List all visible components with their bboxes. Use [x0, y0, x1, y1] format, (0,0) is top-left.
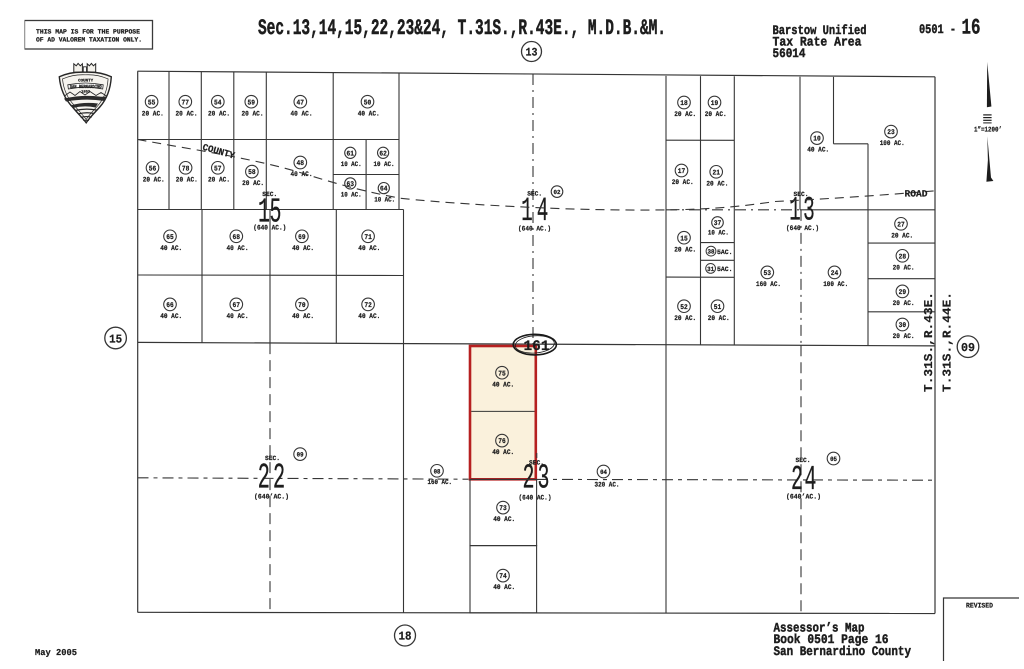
svg-text:1”=1200’: 1”=1200’	[974, 126, 1002, 135]
svg-text:48: 48	[297, 160, 304, 168]
svg-text:20 AC.: 20 AC.	[176, 110, 198, 118]
svg-text:09: 09	[961, 341, 975, 355]
svg-text:59: 59	[248, 99, 255, 107]
svg-text:62: 62	[379, 150, 386, 158]
svg-text:77: 77	[182, 99, 189, 107]
svg-text:58: 58	[248, 169, 255, 177]
svg-text:40 AC.: 40 AC.	[492, 449, 514, 457]
svg-text:160 AC.: 160 AC.	[428, 479, 453, 487]
svg-text:69: 69	[298, 234, 305, 242]
svg-text:75: 75	[498, 370, 505, 378]
svg-text:66: 66	[166, 302, 173, 310]
svg-text:17: 17	[678, 168, 685, 176]
svg-text:51: 51	[714, 304, 722, 312]
svg-text:29: 29	[899, 289, 906, 297]
svg-text:52: 52	[680, 304, 687, 312]
svg-text:161: 161	[524, 339, 550, 355]
svg-text:40 AC.: 40 AC.	[227, 245, 249, 253]
svg-text:61: 61	[347, 150, 355, 158]
svg-text:71: 71	[364, 234, 372, 242]
svg-text:20 AC.: 20 AC.	[176, 176, 198, 184]
svg-text:20 AC.: 20 AC.	[706, 180, 728, 188]
svg-text:20 AC.: 20 AC.	[672, 179, 694, 187]
svg-text:54: 54	[214, 99, 222, 107]
svg-text:27: 27	[897, 221, 904, 229]
svg-text:5AC.: 5AC.	[717, 249, 733, 256]
svg-text:13: 13	[526, 47, 538, 60]
svg-text:100 AC.: 100 AC.	[823, 281, 848, 289]
svg-text:56014: 56014	[773, 46, 806, 61]
svg-text:10: 10	[813, 136, 820, 144]
svg-text:T.31S.,R.44E.: T.31S.,R.44E.	[941, 292, 955, 392]
svg-text:28: 28	[899, 253, 906, 261]
svg-text:21: 21	[712, 169, 720, 177]
svg-text:20 AC.: 20 AC.	[674, 246, 696, 254]
svg-text:40 AC.: 40 AC.	[291, 171, 313, 179]
svg-text:2: 2	[523, 459, 535, 499]
svg-text:40 AC.: 40 AC.	[807, 147, 829, 155]
svg-text:31: 31	[707, 266, 714, 273]
svg-text:47: 47	[297, 99, 304, 107]
svg-text:73: 73	[499, 505, 506, 513]
svg-text:REVISED: REVISED	[966, 603, 993, 611]
svg-text:40 AC.: 40 AC.	[291, 110, 313, 118]
svg-text:20 AC.: 20 AC.	[893, 264, 915, 272]
svg-text:40 AC.: 40 AC.	[492, 381, 514, 389]
svg-text:64: 64	[380, 186, 388, 194]
svg-text:10 AC.: 10 AC.	[341, 161, 362, 169]
svg-text:(640 AC.): (640 AC.)	[519, 495, 552, 503]
svg-text:15: 15	[680, 235, 687, 243]
svg-text:10 AC.: 10 AC.	[374, 161, 395, 169]
svg-text:20 AC.: 20 AC.	[893, 300, 915, 308]
svg-text:67: 67	[233, 302, 240, 310]
svg-text:20 AC.: 20 AC.	[708, 315, 730, 323]
svg-text:24: 24	[831, 270, 839, 278]
svg-text:(640’AC.): (640’AC.)	[786, 494, 821, 502]
svg-text:0501 -: 0501 -	[919, 22, 956, 37]
svg-text:65: 65	[166, 234, 173, 242]
svg-text:40 AC.: 40 AC.	[160, 313, 182, 321]
svg-text:74: 74	[499, 573, 507, 581]
svg-text:40 AC.: 40 AC.	[493, 516, 515, 524]
svg-text:100 AC.: 100 AC.	[880, 140, 905, 148]
svg-text:COUNTY: COUNTY	[201, 142, 236, 162]
svg-text:05: 05	[830, 456, 837, 463]
svg-text:T.31S.,R.43E.: T.31S.,R.43E.	[922, 292, 936, 392]
svg-text:40 AC.: 40 AC.	[292, 313, 314, 321]
svg-text:20 AC.: 20 AC.	[208, 110, 230, 118]
svg-text:320 AC.: 320 AC.	[595, 481, 620, 489]
svg-text:50: 50	[364, 99, 371, 107]
svg-text:19: 19	[711, 100, 718, 108]
svg-text:40 AC.: 40 AC.	[227, 313, 249, 321]
svg-text:(640’AC.): (640’AC.)	[254, 494, 289, 502]
svg-text:2: 2	[258, 458, 270, 499]
svg-text:10 AC.: 10 AC.	[341, 192, 362, 200]
svg-text:15: 15	[109, 332, 122, 346]
svg-text:40 AC.: 40 AC.	[358, 245, 380, 253]
svg-text:20 AC.: 20 AC.	[674, 111, 696, 119]
svg-text:(640 AC.): (640 AC.)	[253, 225, 286, 233]
svg-text:76: 76	[498, 438, 505, 446]
svg-text:37: 37	[714, 220, 721, 228]
svg-text:40 AC.: 40 AC.	[160, 245, 182, 253]
svg-text:57: 57	[214, 165, 221, 173]
svg-text:55: 55	[148, 99, 155, 107]
svg-text:May 2005: May 2005	[35, 648, 77, 658]
svg-text:10 AC.: 10 AC.	[374, 196, 395, 204]
svg-text:20 AC.: 20 AC.	[893, 333, 915, 341]
svg-text:SAN BERNARDINO: SAN BERNARDINO	[70, 84, 102, 90]
svg-text:16: 16	[962, 16, 981, 41]
svg-text:20 AC.: 20 AC.	[208, 176, 230, 184]
svg-text:5AC.: 5AC.	[717, 266, 733, 273]
svg-text:04: 04	[600, 469, 607, 476]
svg-text:08: 08	[434, 468, 441, 475]
svg-text:20 AC.: 20 AC.	[891, 232, 913, 240]
svg-text:20 AC.: 20 AC.	[242, 180, 264, 188]
svg-text:(640 AC.): (640 AC.)	[518, 225, 551, 233]
svg-text:38: 38	[708, 249, 715, 256]
svg-text:OF AD VALOREM TAXATION ONLY.: OF AD VALOREM TAXATION ONLY.	[36, 37, 142, 44]
svg-text:40 AC.: 40 AC.	[292, 245, 314, 253]
svg-text:72: 72	[364, 302, 371, 310]
svg-text:20 AC.: 20 AC.	[674, 315, 696, 323]
svg-text:09: 09	[297, 452, 304, 459]
svg-text:THIS MAP IS FOR THE PURPOSE: THIS MAP IS FOR THE PURPOSE	[36, 29, 140, 36]
svg-text:63: 63	[347, 181, 354, 189]
svg-text:2: 2	[273, 458, 285, 499]
svg-text:(640 AC.): (640 AC.)	[786, 225, 819, 233]
svg-text:40 AC.: 40 AC.	[358, 313, 380, 321]
svg-text:40 AC.: 40 AC.	[493, 584, 515, 592]
svg-text:20 AC.: 20 AC.	[142, 110, 164, 118]
svg-text:Sec.13,14,15,22,23&24, T.31S.,: Sec.13,14,15,22,23&24, T.31S.,R.43E., M.…	[258, 16, 666, 41]
svg-text:68: 68	[233, 234, 240, 242]
svg-text:30: 30	[899, 322, 906, 330]
svg-text:70: 70	[298, 302, 305, 310]
svg-text:53: 53	[764, 270, 771, 278]
svg-text:20 AC.: 20 AC.	[705, 111, 727, 119]
svg-text:ROAD: ROAD	[905, 189, 928, 200]
svg-text:02: 02	[554, 189, 561, 196]
svg-text:20 AC.: 20 AC.	[242, 110, 264, 118]
svg-text:23: 23	[887, 129, 894, 137]
svg-text:18: 18	[680, 100, 687, 108]
svg-text:San Bernardino County: San Bernardino County	[774, 644, 912, 659]
svg-text:160 AC.: 160 AC.	[756, 281, 781, 289]
svg-text:78: 78	[182, 165, 189, 173]
svg-text:18: 18	[399, 630, 412, 644]
svg-text:56: 56	[149, 165, 156, 173]
svg-text:40 AC.: 40 AC.	[358, 110, 380, 118]
svg-text:3: 3	[538, 459, 550, 499]
svg-text:10 AC.: 10 AC.	[708, 230, 729, 238]
svg-text:20 AC.: 20 AC.	[143, 176, 165, 184]
